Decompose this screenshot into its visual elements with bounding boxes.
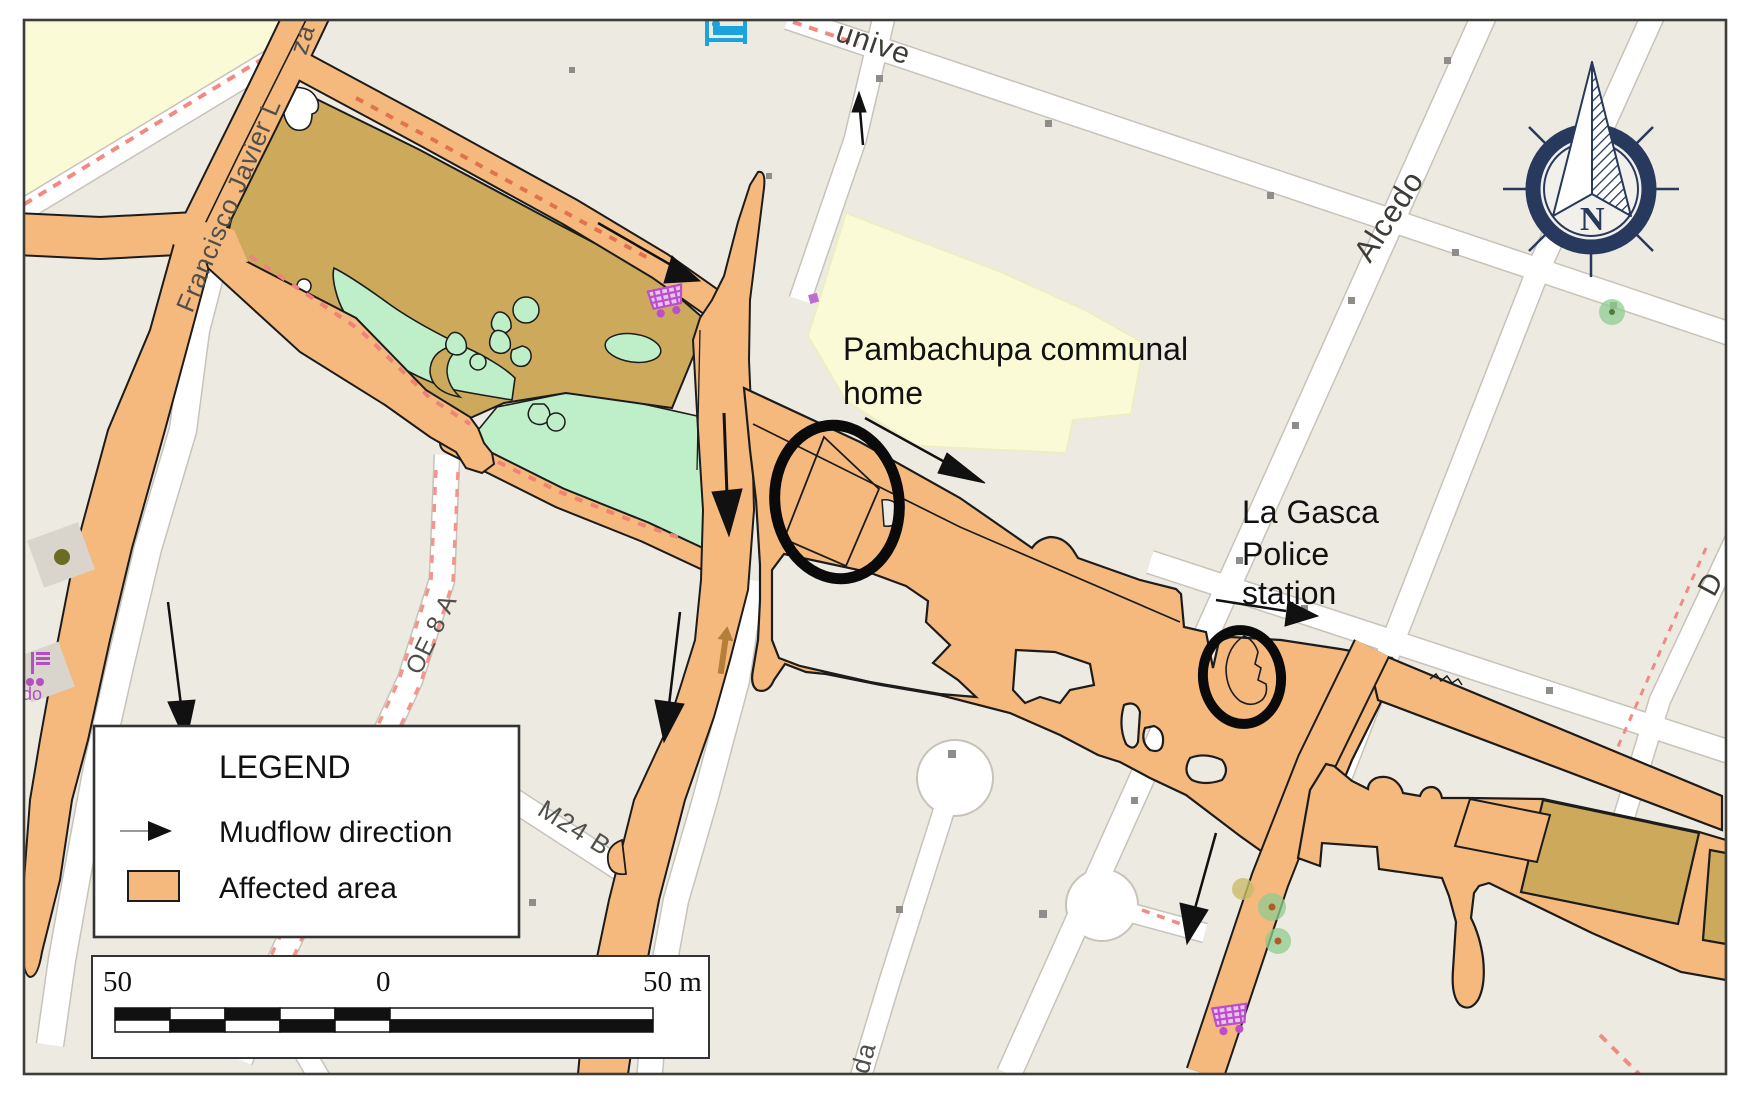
svg-text:Police: Police [1242,536,1329,572]
svg-text:Mudflow direction: Mudflow direction [219,816,452,849]
svg-text:LEGEND: LEGEND [219,749,351,785]
svg-text:La Gasca: La Gasca [1242,494,1379,530]
svg-text:50 m: 50 m [643,966,702,998]
svg-text:N: N [1580,201,1605,238]
svg-text:50: 50 [103,966,132,998]
svg-text:Pambachupa communal: Pambachupa communal [843,331,1188,367]
svg-text:0: 0 [376,966,391,998]
svg-text:station: station [1242,575,1336,611]
svg-text:Affected area: Affected area [219,872,397,905]
svg-text:home: home [843,375,923,411]
